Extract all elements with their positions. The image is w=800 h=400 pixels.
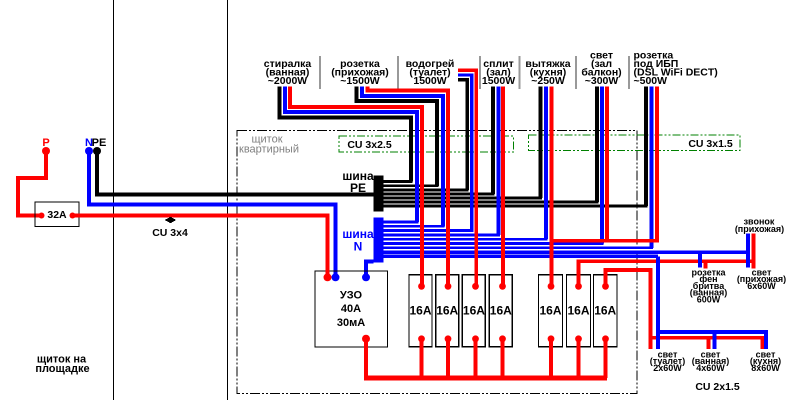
svg-text:CU 3x2.5: CU 3x2.5 — [347, 139, 392, 151]
svg-text:16А: 16А — [463, 304, 485, 318]
svg-text:щиток наплощадке: щиток наплощадке — [35, 354, 89, 375]
svg-text:стиралка(ванная)~2000W: стиралка(ванная)~2000W — [264, 58, 312, 87]
svg-text:16А: 16А — [594, 304, 616, 318]
svg-text:сплит(зал)1500W: сплит(зал)1500W — [482, 58, 515, 87]
svg-text:PE: PE — [92, 137, 107, 149]
svg-text:P: P — [42, 137, 49, 149]
svg-text:16А: 16А — [539, 304, 561, 318]
svg-text:CU 3x4: CU 3x4 — [152, 227, 188, 239]
svg-text:вытяжка(кухня)~250W: вытяжка(кухня)~250W — [525, 58, 570, 87]
svg-text:CU 2x1.5: CU 2x1.5 — [695, 381, 740, 393]
svg-text:УЗО40А30мА: УЗО40А30мА — [337, 290, 365, 329]
svg-text:32А: 32А — [47, 209, 67, 221]
svg-text:16А: 16А — [409, 304, 431, 318]
svg-text:16А: 16А — [490, 304, 512, 318]
svg-text:CU 3x1.5: CU 3x1.5 — [688, 138, 733, 150]
svg-text:16А: 16А — [436, 304, 458, 318]
svg-text:16А: 16А — [567, 304, 589, 318]
